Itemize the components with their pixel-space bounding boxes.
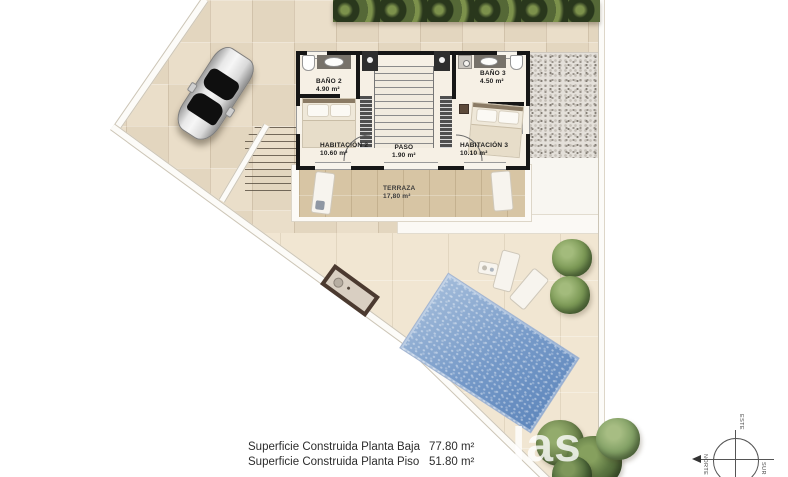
compass-label-sur: SUR — [760, 462, 766, 475]
room-label-habitacion2: HABITACIÓN 210.60 m² — [320, 142, 368, 158]
area-summary: Superficie Construida Planta Baja 77.80 … — [248, 440, 474, 470]
plate — [482, 265, 488, 271]
summary-row: Superficie Construida Planta Baja 77.80 … — [248, 440, 474, 455]
sun-lounger — [490, 170, 513, 212]
room-label-habitacion3: HABITACIÓN 310.10 m² — [460, 142, 508, 158]
towel — [315, 200, 325, 210]
compass-circle — [713, 438, 759, 477]
summary-value: 51.80 m² — [429, 455, 474, 470]
plate — [490, 267, 495, 272]
floor-plan-canvas: BAÑO 24.90 m² BAÑO 34.50 m² HABITACIÓN 2… — [0, 0, 788, 477]
boundary-wall-east — [598, 0, 605, 453]
summary-value: 77.80 m² — [429, 440, 474, 455]
room-label-paso: PASO1.90 m² — [392, 144, 416, 160]
summary-label: Superficie Construida Planta Piso — [248, 455, 429, 470]
room-label-bano2: BAÑO 24.90 m² — [316, 78, 342, 94]
summary-row: Superficie Construida Planta Piso 51.80 … — [248, 455, 474, 470]
bush — [552, 239, 592, 277]
compass-rose: ESTE SUR NORTE — [690, 414, 788, 477]
compass-label-este: ESTE — [738, 414, 744, 430]
gravel-area — [527, 52, 600, 160]
room-label-terraza: TERRAZA17,80 m² — [383, 185, 415, 201]
compass-label-norte: NORTE — [702, 454, 708, 475]
palm-cluster — [596, 418, 640, 460]
bush — [550, 276, 590, 314]
watermark: las — [512, 418, 582, 473]
compass-axis-horizontal — [698, 459, 774, 460]
summary-label: Superficie Construida Planta Baja — [248, 440, 429, 455]
hedge — [333, 0, 600, 22]
compass-north-arrow — [692, 455, 701, 463]
compass-axis-vertical — [735, 430, 736, 477]
room-label-bano3: BAÑO 34.50 m² — [480, 70, 506, 86]
